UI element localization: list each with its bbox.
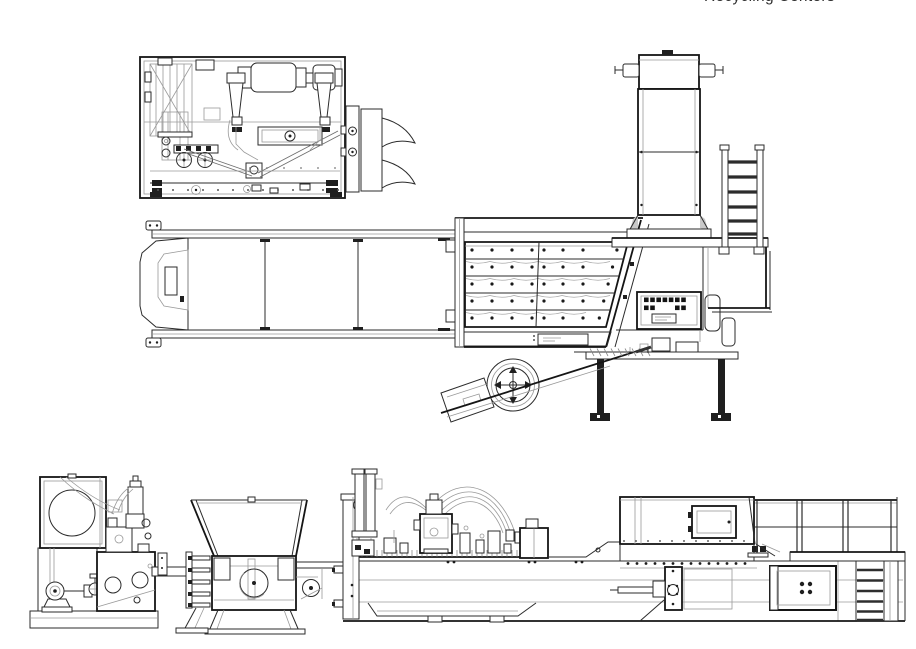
oil-tank: [97, 552, 155, 611]
main-valve-block: [420, 514, 452, 553]
power-unit-outlet-horns: [341, 106, 415, 192]
access-ladder-elevation: [856, 561, 898, 621]
platform-deck: [790, 552, 905, 561]
name-plate: [538, 334, 588, 345]
ladder-rungs: [857, 570, 883, 620]
horn-upper: [382, 118, 415, 147]
shredder-hopper-elevation: [152, 497, 344, 634]
conveyor-tail: [140, 238, 188, 330]
platform-railing: [755, 497, 905, 561]
upper-housing: [620, 497, 780, 561]
technical-drawing: [0, 0, 916, 649]
control-panel: [637, 292, 701, 329]
ram-cylinder: [610, 567, 732, 610]
baler-elevation: [332, 469, 905, 622]
ladder-rungs: [728, 162, 757, 234]
conveyor-plan-view: [140, 221, 456, 347]
deck-hydraulics: [352, 469, 548, 558]
discharge-comb: [152, 552, 210, 633]
support-legs-plan: [586, 330, 738, 421]
feed-tower-plan: [612, 50, 768, 247]
valve-manifold: [258, 127, 322, 145]
power-unit-plan-view: [140, 57, 345, 198]
bale-eject-door: [770, 566, 836, 610]
tower-deck: [612, 238, 768, 247]
power-unit-elevation: [30, 474, 158, 628]
horn-lower: [382, 160, 415, 188]
page-title: Recycling Centers: [704, 0, 835, 6]
guide-rod: [441, 347, 650, 413]
drawing-page: Recycling Centers: [0, 0, 916, 649]
panel-label: [652, 314, 676, 323]
